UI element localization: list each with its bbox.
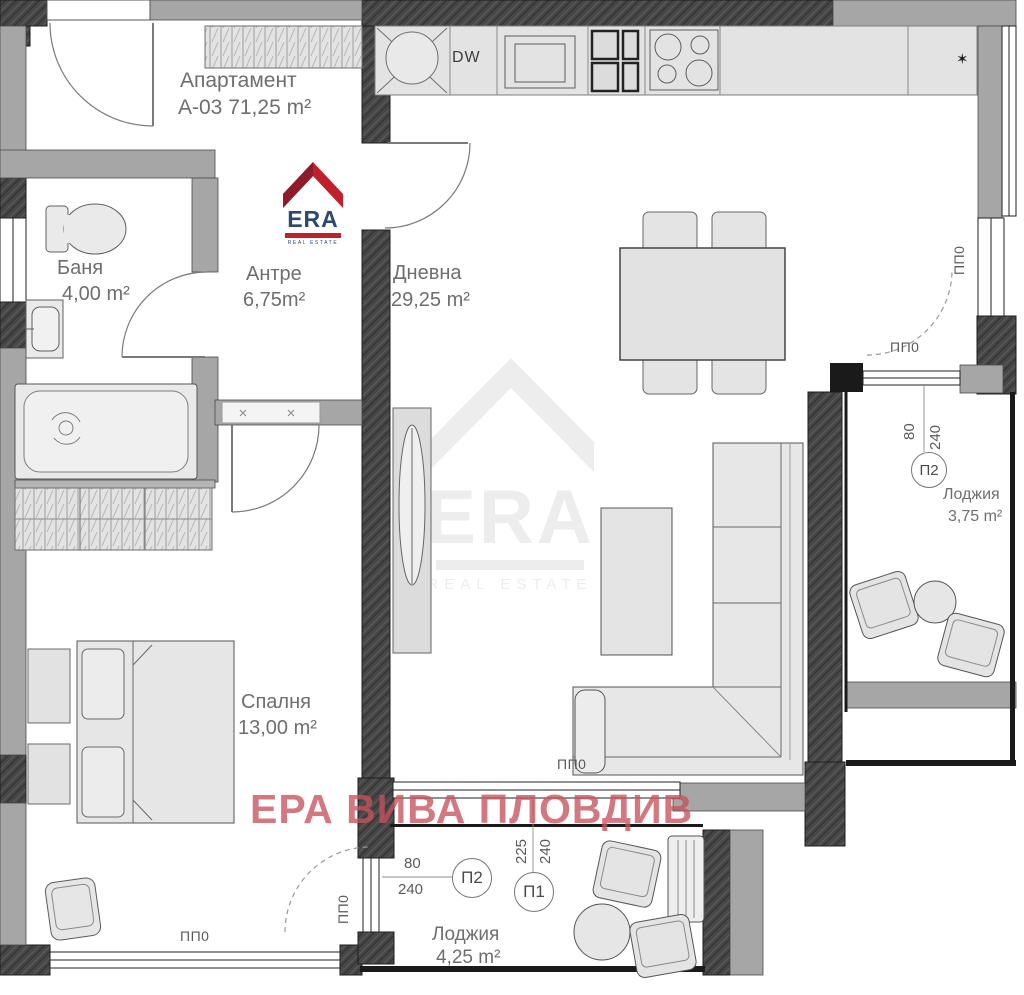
planter-icon xyxy=(668,836,704,922)
door-marker-p2-right: П2 xyxy=(911,452,947,488)
loggia-right-armchair xyxy=(848,569,920,640)
floor-plan-drawing xyxy=(0,0,1024,995)
era-logo-subtext: REAL ESTATE xyxy=(283,240,343,246)
bedroom-door-arc xyxy=(232,425,319,512)
window-label-pp0: ПП0 xyxy=(557,757,586,771)
window-kitchen-right xyxy=(1002,26,1016,216)
loggia-right-armchair xyxy=(936,611,1006,678)
dim-width: 80 xyxy=(902,423,917,440)
pillow xyxy=(82,649,124,719)
window-loggia-right-upper xyxy=(978,218,1004,316)
entry-closet xyxy=(205,26,362,68)
room-area-bathroom: 4,00 m² xyxy=(62,284,130,304)
dim-width: 80 xyxy=(404,856,421,871)
dim-height: 240 xyxy=(398,882,423,897)
watermark-era-roof-icon xyxy=(428,358,594,570)
window-label-pp0: ПП0 xyxy=(180,929,209,943)
tv-console xyxy=(393,408,431,653)
room-label-loggia-bottom: Лоджия xyxy=(432,925,499,944)
loggia-bottom-door-arc xyxy=(285,847,370,932)
bed xyxy=(77,641,234,823)
bathtub-icon xyxy=(15,384,197,479)
room-label-bathroom: Баня xyxy=(57,258,103,278)
window-door-loggia-bottom xyxy=(363,858,379,932)
room-label-loggia-right: Лоджия xyxy=(943,487,1000,503)
loggia-bottom-armchair xyxy=(592,839,663,908)
kitchen-door-arc xyxy=(385,143,470,228)
door-marker-p2-bottom: П2 xyxy=(452,858,492,898)
era-logo-text: ERA xyxy=(283,206,343,233)
coffee-table xyxy=(601,508,672,655)
loggia-bottom-armchair xyxy=(629,913,698,979)
bedroom-chair xyxy=(44,877,102,941)
nightstand xyxy=(28,649,70,804)
window-label-pp0: ПП0 xyxy=(952,246,966,275)
dishwasher-label: DW xyxy=(452,50,481,66)
star-symbol: ✶ xyxy=(956,52,969,67)
entrance-opening xyxy=(47,0,150,20)
room-label-bedroom: Спалня xyxy=(241,692,311,712)
floor-plan: ERA REAL ESTATE xyxy=(0,0,1024,995)
dining-table xyxy=(620,212,785,394)
kitchen-sink-icon xyxy=(377,28,447,93)
toilet-icon xyxy=(46,204,126,254)
dim-height: 240 xyxy=(928,425,943,450)
window-bathroom-left xyxy=(0,218,26,302)
washbasin-icon xyxy=(26,300,63,358)
door-marker-p1-bottom: П1 xyxy=(514,872,554,912)
window-label-pp0: ПП0 xyxy=(890,340,919,354)
room-label-living: Дневна xyxy=(393,263,462,283)
bedroom-door-opening xyxy=(222,402,320,423)
watermark-agency-name: ЕРА ВИВА ПЛОВДИВ xyxy=(250,786,693,833)
room-area-living: 29,25 m² xyxy=(391,290,470,310)
dim-height: 240 xyxy=(538,839,553,864)
room-area-loggia-bottom: 4,25 m² xyxy=(436,948,500,967)
room-area-loggia-right: 3,75 m² xyxy=(948,509,1002,525)
window-label-pp0: ПП0 xyxy=(336,895,350,924)
room-area-bedroom: 13,00 m² xyxy=(238,718,317,738)
dim-width: 225 xyxy=(514,839,529,864)
room-label-hall: Антре xyxy=(246,264,302,284)
loggia-bottom-table xyxy=(574,904,630,960)
bathroom-door-arc xyxy=(122,272,207,357)
window-bedroom-bottom xyxy=(50,952,340,968)
apartment-title: Апартамент xyxy=(180,70,297,91)
apartment-area: А-03 71,25 m² xyxy=(178,97,311,118)
room-area-hall: 6,75m² xyxy=(243,290,305,310)
window-door-loggia-right xyxy=(863,371,960,385)
pillow xyxy=(82,747,124,817)
bedroom-wardrobe xyxy=(15,488,212,550)
entrance-door-arc xyxy=(50,23,153,126)
